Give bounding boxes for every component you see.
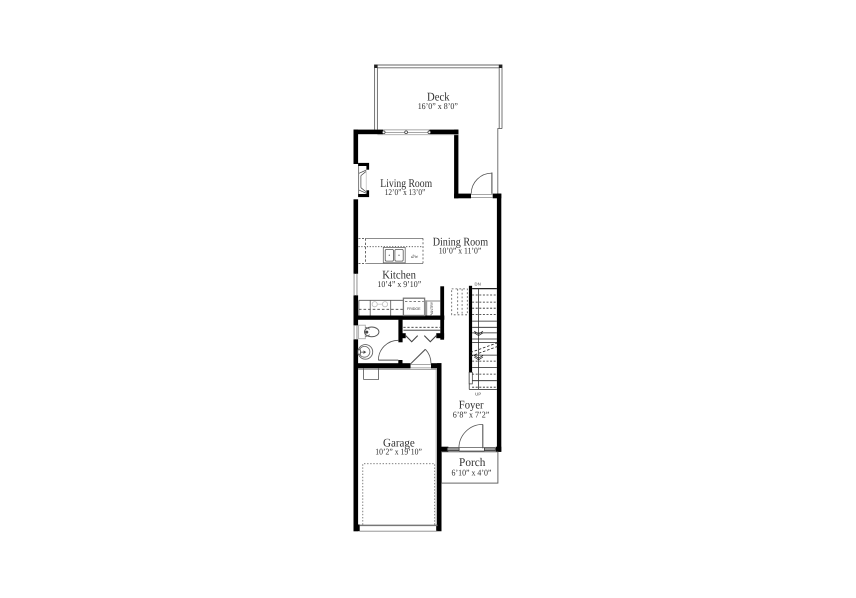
- svg-text:10’0” x 11’0”: 10’0” x 11’0”: [439, 246, 482, 256]
- svg-text:6’10” x 4’0”: 6’10” x 4’0”: [452, 467, 492, 477]
- svg-text:10’2” x 19’10”: 10’2” x 19’10”: [375, 447, 422, 457]
- svg-text:6’8” x 7’2”: 6’8” x 7’2”: [453, 409, 490, 419]
- svg-text:16’0” x 8’0”: 16’0” x 8’0”: [418, 101, 458, 111]
- svg-text:DN: DN: [474, 281, 481, 286]
- svg-text:FRIDGE: FRIDGE: [407, 307, 421, 311]
- svg-text:10’4” x 9’10”: 10’4” x 9’10”: [377, 279, 421, 289]
- svg-text:PANTRY: PANTRY: [430, 301, 434, 316]
- svg-text:UP: UP: [475, 391, 481, 396]
- svg-text:12’0” x 13’0”: 12’0” x 13’0”: [385, 187, 426, 197]
- svg-text:d/w: d/w: [411, 254, 419, 260]
